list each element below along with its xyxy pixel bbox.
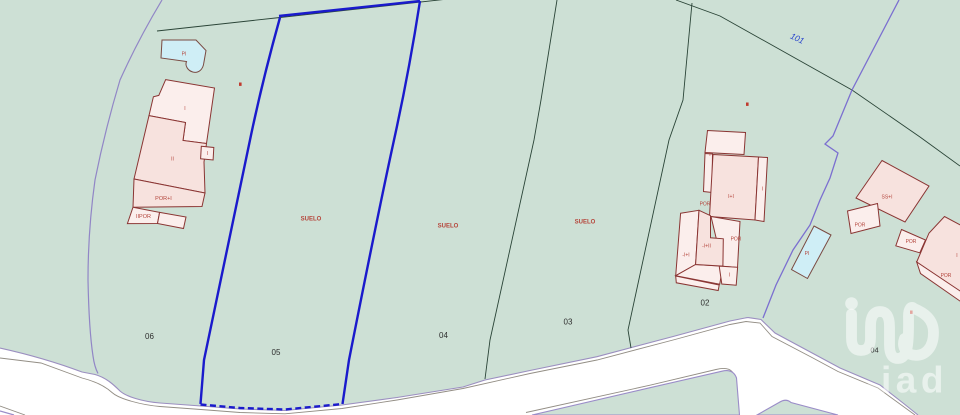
svg-text:POR: POR <box>855 223 866 229</box>
svg-text:POR: POR <box>906 239 917 245</box>
svg-text:II: II <box>171 157 174 163</box>
svg-text:02: 02 <box>701 299 710 308</box>
svg-text:05: 05 <box>272 348 281 357</box>
svg-text:I: I <box>729 273 730 279</box>
svg-text:-I+I: -I+I <box>682 253 689 259</box>
svg-text:SUELO: SUELO <box>301 217 322 223</box>
svg-text:SUELO: SUELO <box>575 220 596 226</box>
svg-text:POR: POR <box>731 237 742 243</box>
svg-text:I: I <box>184 106 185 112</box>
svg-text:iad: iad <box>881 360 948 401</box>
svg-text:SUELO: SUELO <box>438 224 459 230</box>
svg-text:POR+I: POR+I <box>155 196 172 202</box>
svg-text:IIPOR: IIPOR <box>136 214 151 220</box>
svg-text:POR: POR <box>941 273 952 279</box>
svg-text:I: I <box>709 152 710 158</box>
svg-text:I: I <box>762 187 763 193</box>
svg-text:PI: PI <box>805 251 810 257</box>
svg-text:03: 03 <box>564 318 573 327</box>
svg-text:I: I <box>956 253 957 259</box>
svg-text:PI: PI <box>182 52 187 58</box>
svg-text:POR: POR <box>700 202 711 208</box>
svg-text:-I+II: -I+II <box>702 244 711 250</box>
svg-text:06: 06 <box>145 332 154 341</box>
svg-text:I+I: I+I <box>728 194 734 200</box>
svg-text:04: 04 <box>439 331 448 340</box>
svg-text:SS+I: SS+I <box>882 195 893 201</box>
svg-text:I: I <box>207 151 208 157</box>
